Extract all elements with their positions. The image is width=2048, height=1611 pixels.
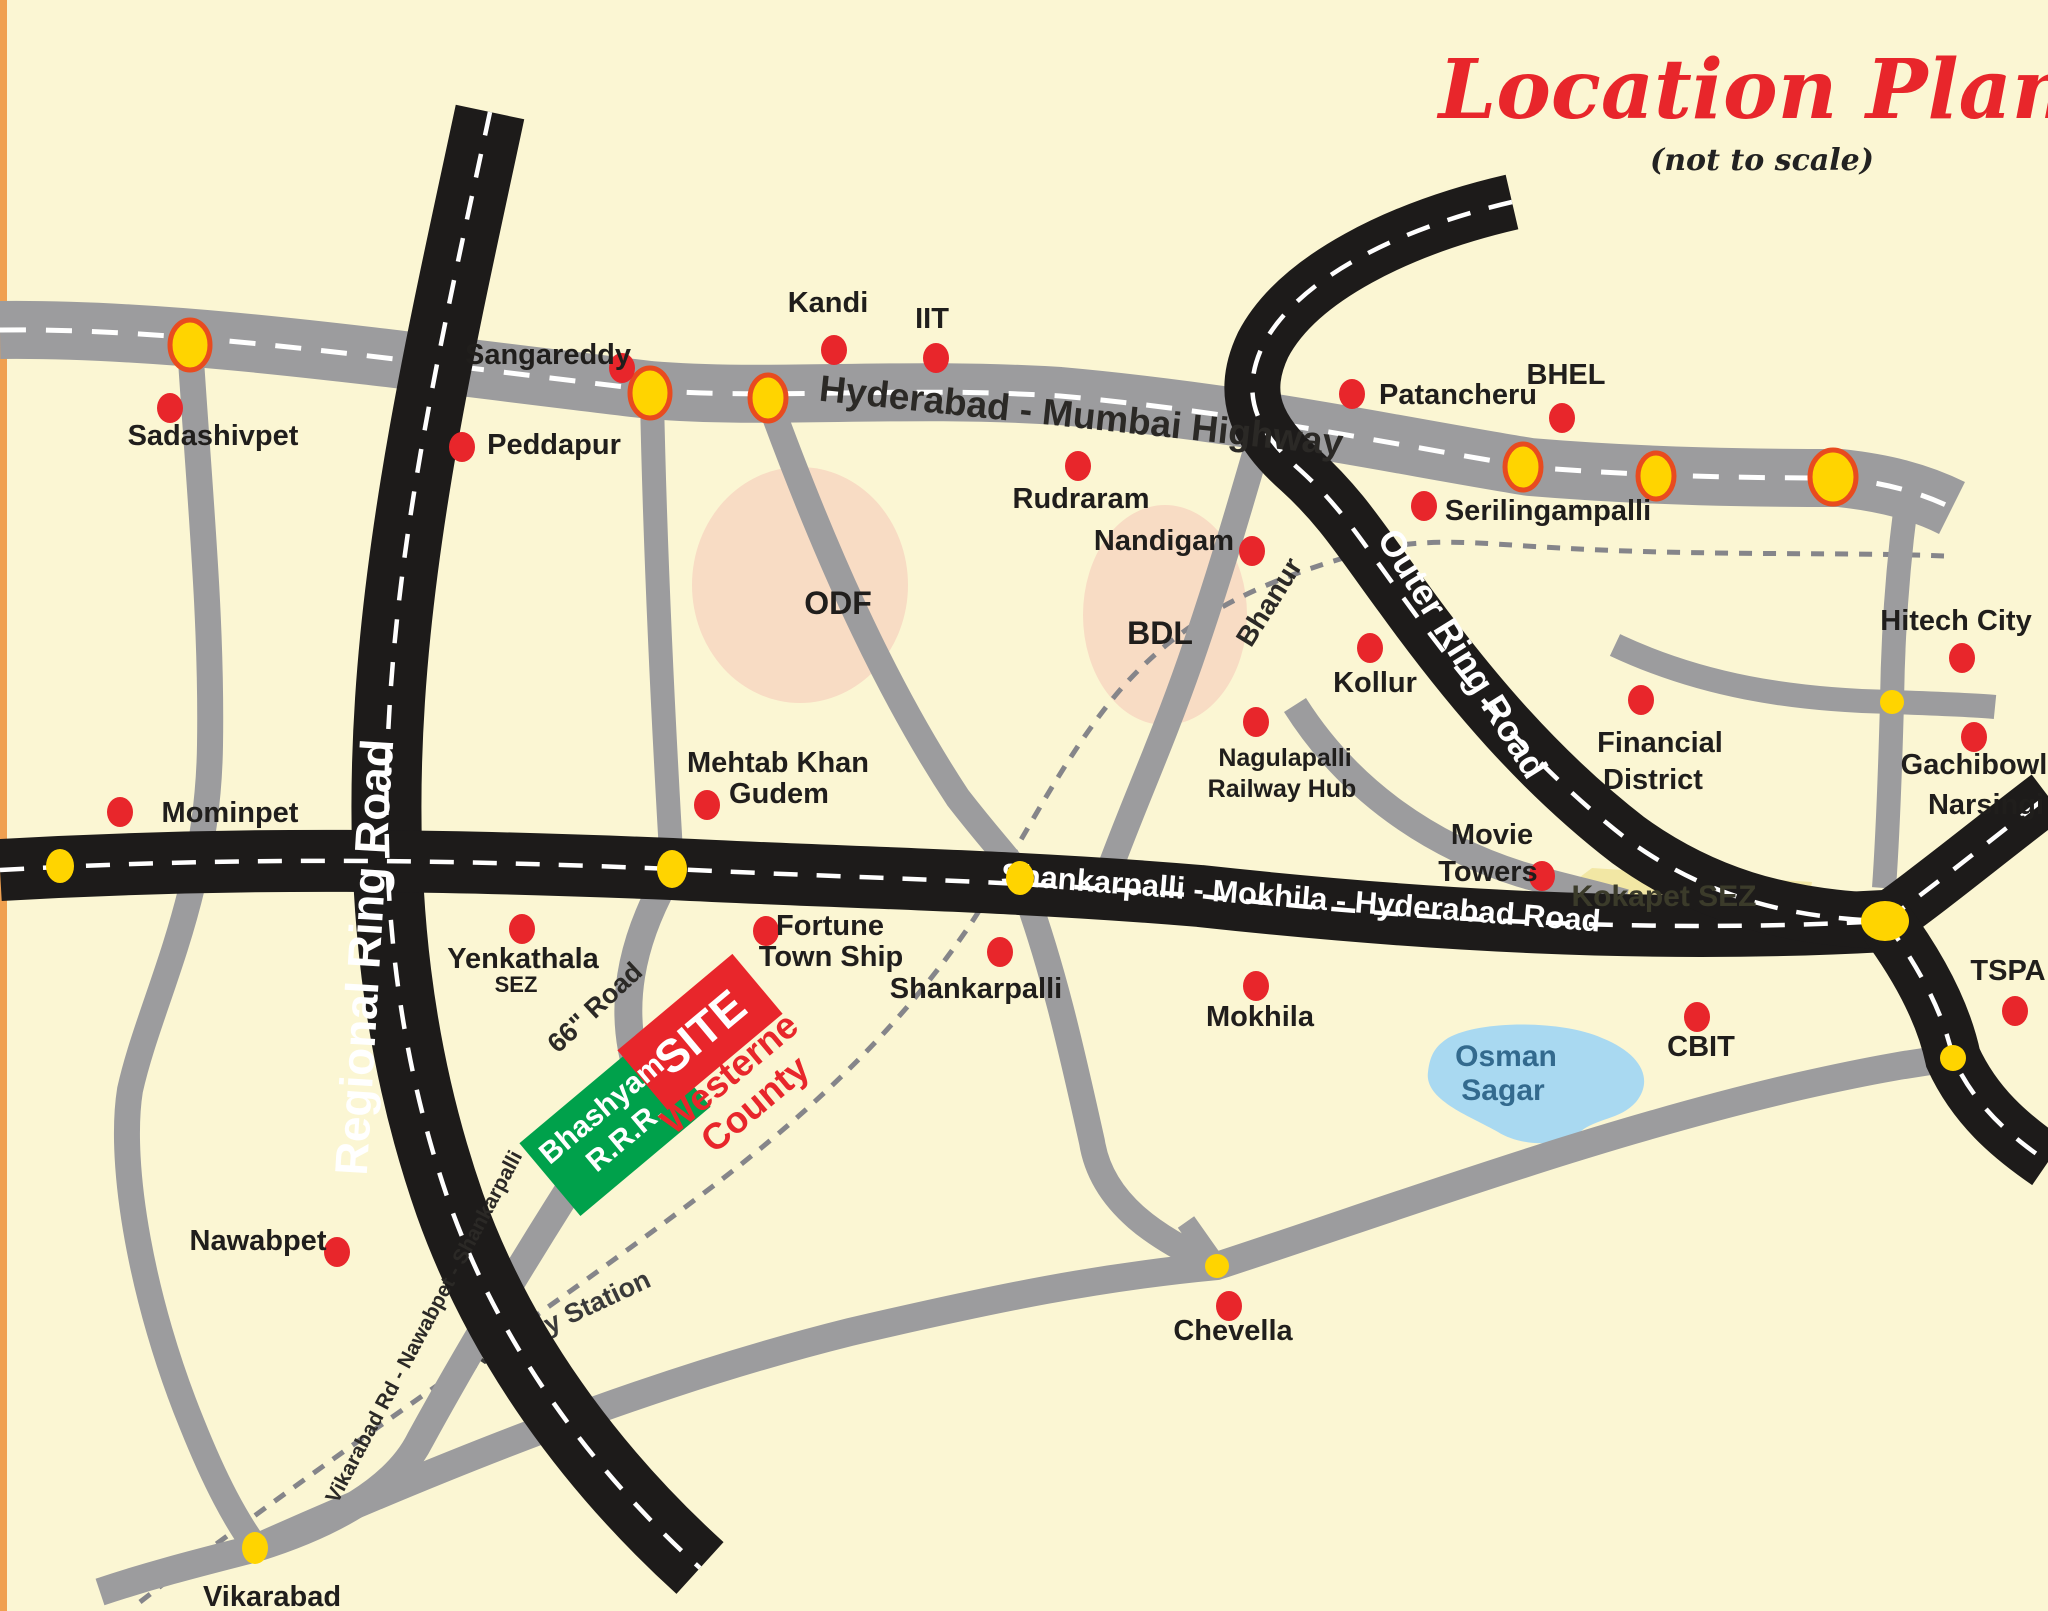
- kokapet-sez-label: Kokapet SEZ: [1571, 880, 1756, 913]
- nagulapalli-railway-hub-label: Railway Hub: [1208, 775, 1357, 803]
- junction-dot: [1505, 444, 1541, 490]
- financial-district-dot: [1628, 685, 1654, 715]
- junction-dot: [1810, 450, 1856, 504]
- junction-dot: [1861, 901, 1909, 941]
- serilingampalli-dot: [1411, 491, 1437, 521]
- movie-towers-label: Towers: [1438, 856, 1537, 888]
- location-plan-map: Railway Station Hyderabad - Mumbai Highw…: [0, 0, 2048, 1611]
- junction-dot: [1205, 1254, 1229, 1278]
- sadashivpet-dot: [157, 393, 183, 423]
- mominpet-label: Mominpet: [162, 797, 299, 829]
- rudraram-label: Rudraram: [1013, 483, 1150, 515]
- iit-dot: [923, 343, 949, 373]
- mehtab-khan-gudem-dot: [694, 790, 720, 820]
- junction-dot: [750, 375, 786, 421]
- junction-dot: [242, 1532, 268, 1564]
- patancheru-label: Patancheru: [1379, 379, 1537, 411]
- mehtab-khan-gudem-label: Mehtab Khan: [687, 747, 869, 779]
- tspa-label: TSPA: [1970, 955, 2045, 987]
- yenkathala-sez-label: SEZ: [495, 972, 538, 997]
- cbit-dot: [1684, 1002, 1710, 1032]
- junction-dot: [630, 368, 670, 418]
- sadashivpet-label: Sadashivpet: [128, 420, 299, 452]
- odf-area-label: ODF: [804, 585, 872, 621]
- mokhila-dot: [1243, 971, 1269, 1001]
- fortune-town-ship-label: Fortune: [776, 910, 884, 942]
- patancheru-dot: [1339, 379, 1365, 409]
- shankarpalli-label: Shankarpalli: [890, 973, 1062, 1005]
- financial-district-label: Financial: [1597, 727, 1723, 759]
- vikarabad-label: Vikarabad: [203, 1581, 341, 1611]
- peddapur-label: Peddapur: [487, 429, 621, 461]
- nandigam-dot: [1239, 536, 1265, 566]
- tspa-dot: [2002, 996, 2028, 1026]
- junction-dot: [1638, 453, 1674, 499]
- kandi-label: Kandi: [788, 287, 869, 319]
- shankarpalli-dot: [987, 937, 1013, 967]
- kandi-dot: [821, 335, 847, 365]
- junction-dot: [657, 850, 687, 888]
- gachibowli-dot: [1961, 722, 1987, 752]
- osman-sagar-label: Sagar: [1461, 1074, 1545, 1107]
- movie-towers-label: Movie: [1451, 819, 1533, 851]
- junction-dot: [1940, 1045, 1966, 1071]
- hitech-city-label: Hitech City: [1880, 605, 2031, 637]
- rudraram-dot: [1065, 451, 1091, 481]
- bhel-dot: [1549, 403, 1575, 433]
- yenkathala-sez-dot: [509, 914, 535, 944]
- cbit-label: CBIT: [1667, 1031, 1735, 1063]
- map-subtitle: (not to scale): [1650, 143, 1874, 178]
- kollur-label: Kollur: [1333, 667, 1417, 699]
- junction-dot: [46, 849, 74, 883]
- chevella-label: Chevella: [1173, 1315, 1293, 1347]
- peddapur-dot: [449, 432, 475, 462]
- gachibowli-label: Gachibowli: [1901, 749, 2048, 781]
- nagulapalli-railway-hub-dot: [1243, 707, 1269, 737]
- hitech-city-dot: [1949, 643, 1975, 673]
- junction-dot: [1880, 690, 1904, 714]
- yenkathala-sez-label: Yenkathala: [447, 943, 599, 975]
- nawabpet-label: Nawabpet: [190, 1225, 327, 1257]
- financial-district-label: District: [1603, 764, 1703, 796]
- bhel-label: BHEL: [1527, 359, 1606, 391]
- junction-dot: [170, 320, 210, 370]
- iit-label: IIT: [915, 303, 949, 335]
- left-border: [0, 0, 7, 1611]
- map-title: Location Plan: [1437, 42, 2048, 138]
- mehtab-khan-gudem-label: Gudem: [729, 778, 829, 810]
- fortune-town-ship-label: Town Ship: [759, 941, 903, 973]
- narsingi-label: Narsingi: [1928, 789, 2044, 821]
- map-background: [0, 0, 2048, 1611]
- nandigam-label: Nandigam: [1094, 525, 1234, 557]
- nagulapalli-railway-hub-label: Nagulapalli: [1218, 744, 1351, 772]
- osman-sagar-label: Osman: [1455, 1040, 1557, 1073]
- serilingampalli-label: Serilingampalli: [1445, 495, 1651, 527]
- sangareddy-label: Sangareddy: [465, 339, 631, 371]
- mokhila-label: Mokhila: [1206, 1001, 1315, 1033]
- bdl-area-label: BDL: [1127, 615, 1193, 651]
- nawabpet-dot: [324, 1237, 350, 1267]
- mominpet-dot: [107, 797, 133, 827]
- junction-dot: [1006, 861, 1034, 895]
- kollur-dot: [1357, 633, 1383, 663]
